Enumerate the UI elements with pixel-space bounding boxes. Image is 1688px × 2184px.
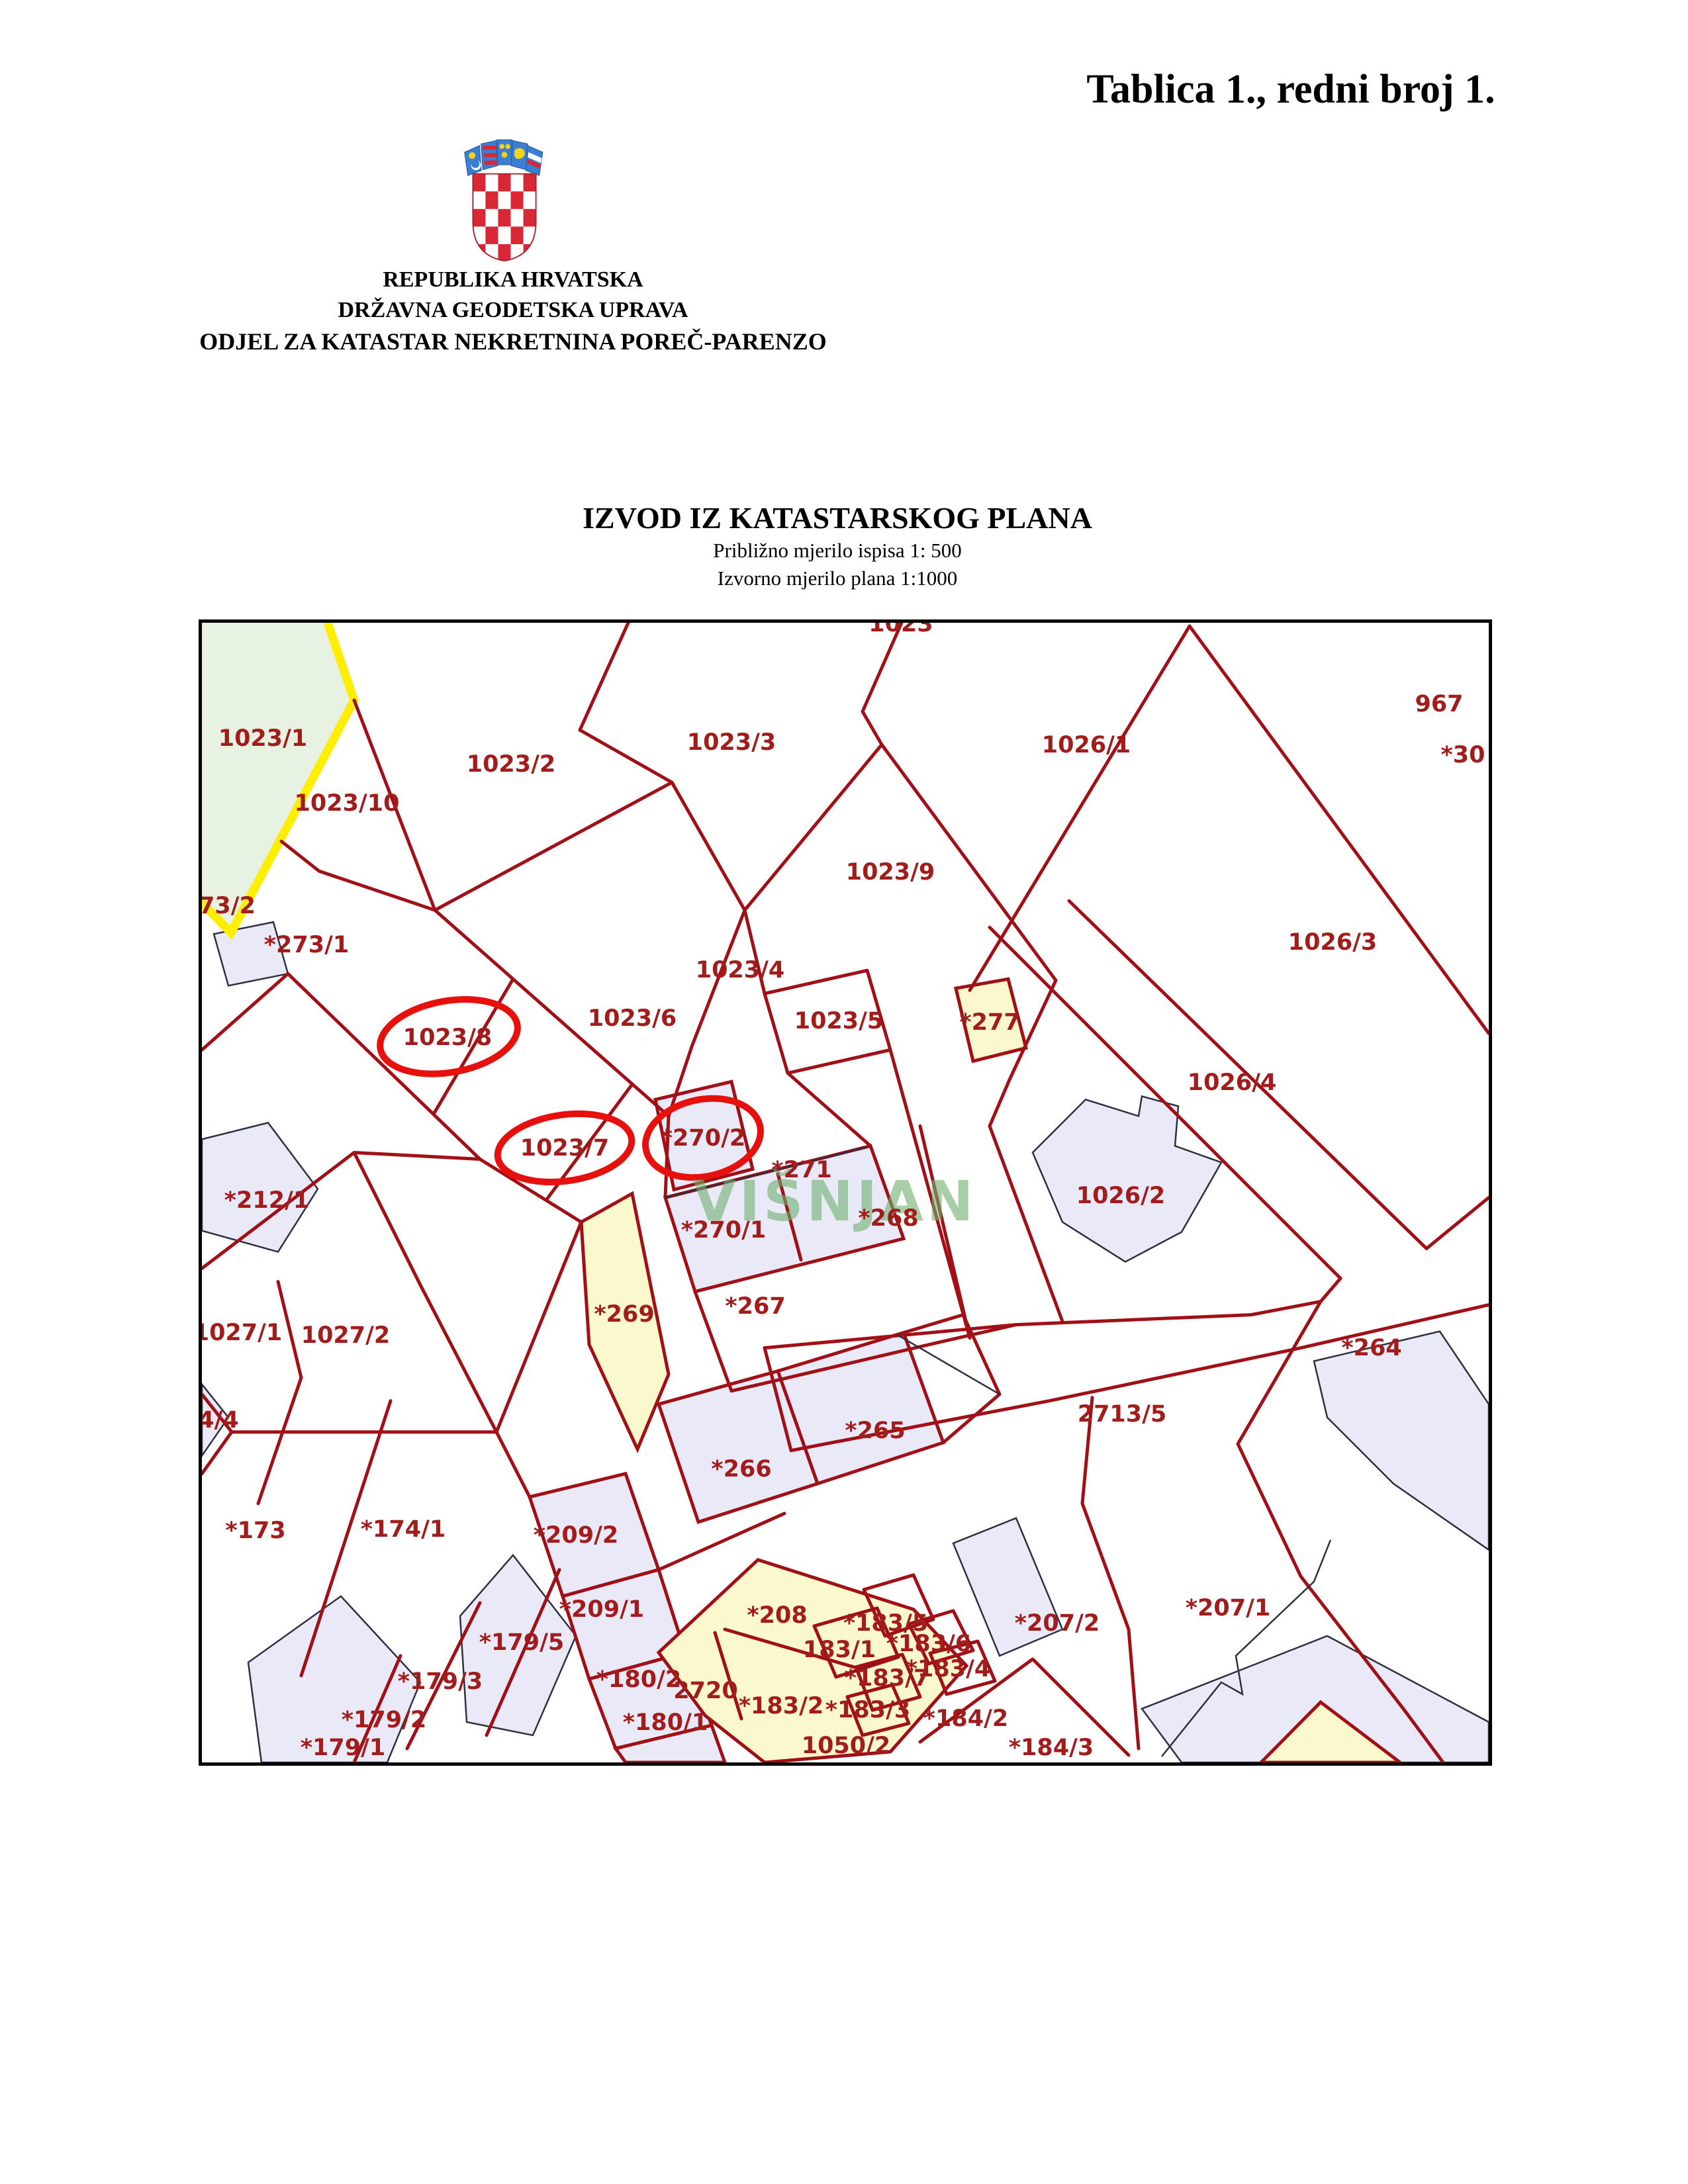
parcel-label--174-1: *174/1 bbox=[361, 1516, 446, 1543]
parcel-label--179-2: *179/2 bbox=[342, 1707, 427, 1733]
crown-shields bbox=[465, 140, 543, 175]
parcel-label--183-6: *183/6 bbox=[886, 1631, 972, 1657]
parcel-label--207-2: *207/2 bbox=[1015, 1610, 1100, 1637]
cadastral-extract-page: { "page_title": "Tablica 1., redni broj … bbox=[0, 0, 1688, 2184]
parcel-label-1023-1: 1023/1 bbox=[218, 725, 308, 752]
parcel-label-183-1: 183/1 bbox=[803, 1637, 876, 1663]
parcel-label--184-2: *184/2 bbox=[923, 1706, 1009, 1732]
parcel-label-73-2: 73/2 bbox=[199, 893, 256, 919]
parcel-label--183-7: *183/7 bbox=[845, 1665, 930, 1692]
parcel-label-1023: 1023 bbox=[868, 619, 933, 637]
parcel-label--209-2: *209/2 bbox=[534, 1522, 619, 1549]
parcel-label--270-2: *270/2 bbox=[661, 1125, 746, 1152]
parcel-label-1050-2: 1050/2 bbox=[802, 1733, 891, 1759]
parcel-label-1023-5: 1023/5 bbox=[794, 1008, 884, 1034]
parcel-label--209-1: *209/1 bbox=[559, 1596, 645, 1623]
parcel-label-967: 967 bbox=[1415, 691, 1463, 717]
parcel-label-1023-8: 1023/8 bbox=[403, 1024, 492, 1051]
parcel-label--273-1: *273/1 bbox=[264, 932, 350, 958]
org-name-agency: DRŽAVNA GEODETSKA UPRAVA bbox=[99, 295, 927, 326]
org-name-office: ODJEL ZA KATASTAR NEKRETNINA POREČ-PAREN… bbox=[99, 326, 927, 357]
parcel-label-1023-10: 1023/10 bbox=[295, 790, 400, 817]
parcel-label--277: *277 bbox=[959, 1009, 1019, 1036]
parcel-label--183-3: *183/3 bbox=[825, 1697, 911, 1723]
letterhead: REPUBLIKA HRVATSKA DRŽAVNA GEODETSKA UPR… bbox=[99, 265, 927, 357]
parcel-label--265: *265 bbox=[845, 1418, 905, 1444]
parcel-label-1023-6: 1023/6 bbox=[588, 1005, 677, 1032]
parcel-label--270-1: *270/1 bbox=[681, 1217, 767, 1244]
parcel-label--30: *30 bbox=[1440, 742, 1485, 768]
cadastral-map: VIŠNJAN 1023/11023/101023/21023/31023102… bbox=[199, 619, 1492, 1766]
parcel-label-2713-5: 2713/5 bbox=[1078, 1401, 1167, 1428]
plan-scale: Izvorno mjerilo plana 1:1000 bbox=[513, 565, 1162, 592]
parcel-label--183-2: *183/2 bbox=[739, 1693, 824, 1719]
document-title: IZVOD IZ KATASTARSKOG PLANA bbox=[513, 500, 1162, 537]
parcel-label--179-5: *179/5 bbox=[479, 1629, 565, 1656]
parcel-label--207-1: *207/1 bbox=[1186, 1595, 1271, 1621]
parcel-label--266: *266 bbox=[711, 1456, 771, 1482]
document-title-block: IZVOD IZ KATASTARSKOG PLANA Približno mj… bbox=[513, 500, 1162, 592]
parcel-label-1026-2: 1026/2 bbox=[1076, 1183, 1166, 1209]
parcel-label--271: *271 bbox=[771, 1157, 831, 1183]
croatia-coat-of-arms bbox=[461, 139, 547, 263]
parcel-label--264: *264 bbox=[1341, 1335, 1401, 1361]
parcel-label-4-4: 4/4 bbox=[199, 1407, 239, 1433]
parcel-label-1027-2: 1027/2 bbox=[301, 1322, 391, 1349]
parcel-label--184-3: *184/3 bbox=[1009, 1735, 1094, 1761]
parcel-label--179-1: *179/1 bbox=[301, 1735, 386, 1761]
parcel-label--180-2: *180/2 bbox=[596, 1666, 682, 1693]
parcel-label-1027-1: 1027/1 bbox=[199, 1320, 282, 1346]
org-name-country: REPUBLIKA HRVATSKA bbox=[99, 265, 927, 295]
checkerboard-shield bbox=[473, 174, 536, 262]
parcel-labels-layer: 1023/11023/101023/21023/310231026/1967*3… bbox=[202, 623, 1489, 1762]
parcel-label-1026-1: 1026/1 bbox=[1042, 732, 1131, 758]
parcel-label--208: *208 bbox=[747, 1602, 807, 1629]
parcel-label--267: *267 bbox=[725, 1293, 785, 1320]
parcel-label--173: *173 bbox=[225, 1518, 285, 1544]
parcel-label-1023-3: 1023/3 bbox=[687, 729, 776, 756]
print-scale: Približno mjerilo ispisa 1: 500 bbox=[513, 537, 1162, 565]
parcel-label--269: *269 bbox=[594, 1301, 654, 1328]
parcel-label--179-3: *179/3 bbox=[398, 1668, 483, 1695]
parcel-label--268: *268 bbox=[858, 1205, 918, 1232]
parcel-label-1023-4: 1023/4 bbox=[696, 957, 785, 983]
parcel-label--212-1: *212/1 bbox=[224, 1187, 310, 1214]
parcel-label-2720: 2720 bbox=[673, 1678, 737, 1704]
parcel-label-1023-9: 1023/9 bbox=[846, 859, 935, 886]
page-title: Tablica 1., redni broj 1. bbox=[1053, 66, 1529, 113]
parcel-label--180-1: *180/1 bbox=[623, 1709, 708, 1736]
parcel-label-1023-7: 1023/7 bbox=[520, 1135, 610, 1161]
parcel-label-1023-2: 1023/2 bbox=[467, 751, 556, 778]
parcel-label-1026-3: 1026/3 bbox=[1288, 929, 1378, 956]
parcel-label-1026-4: 1026/4 bbox=[1188, 1069, 1277, 1096]
